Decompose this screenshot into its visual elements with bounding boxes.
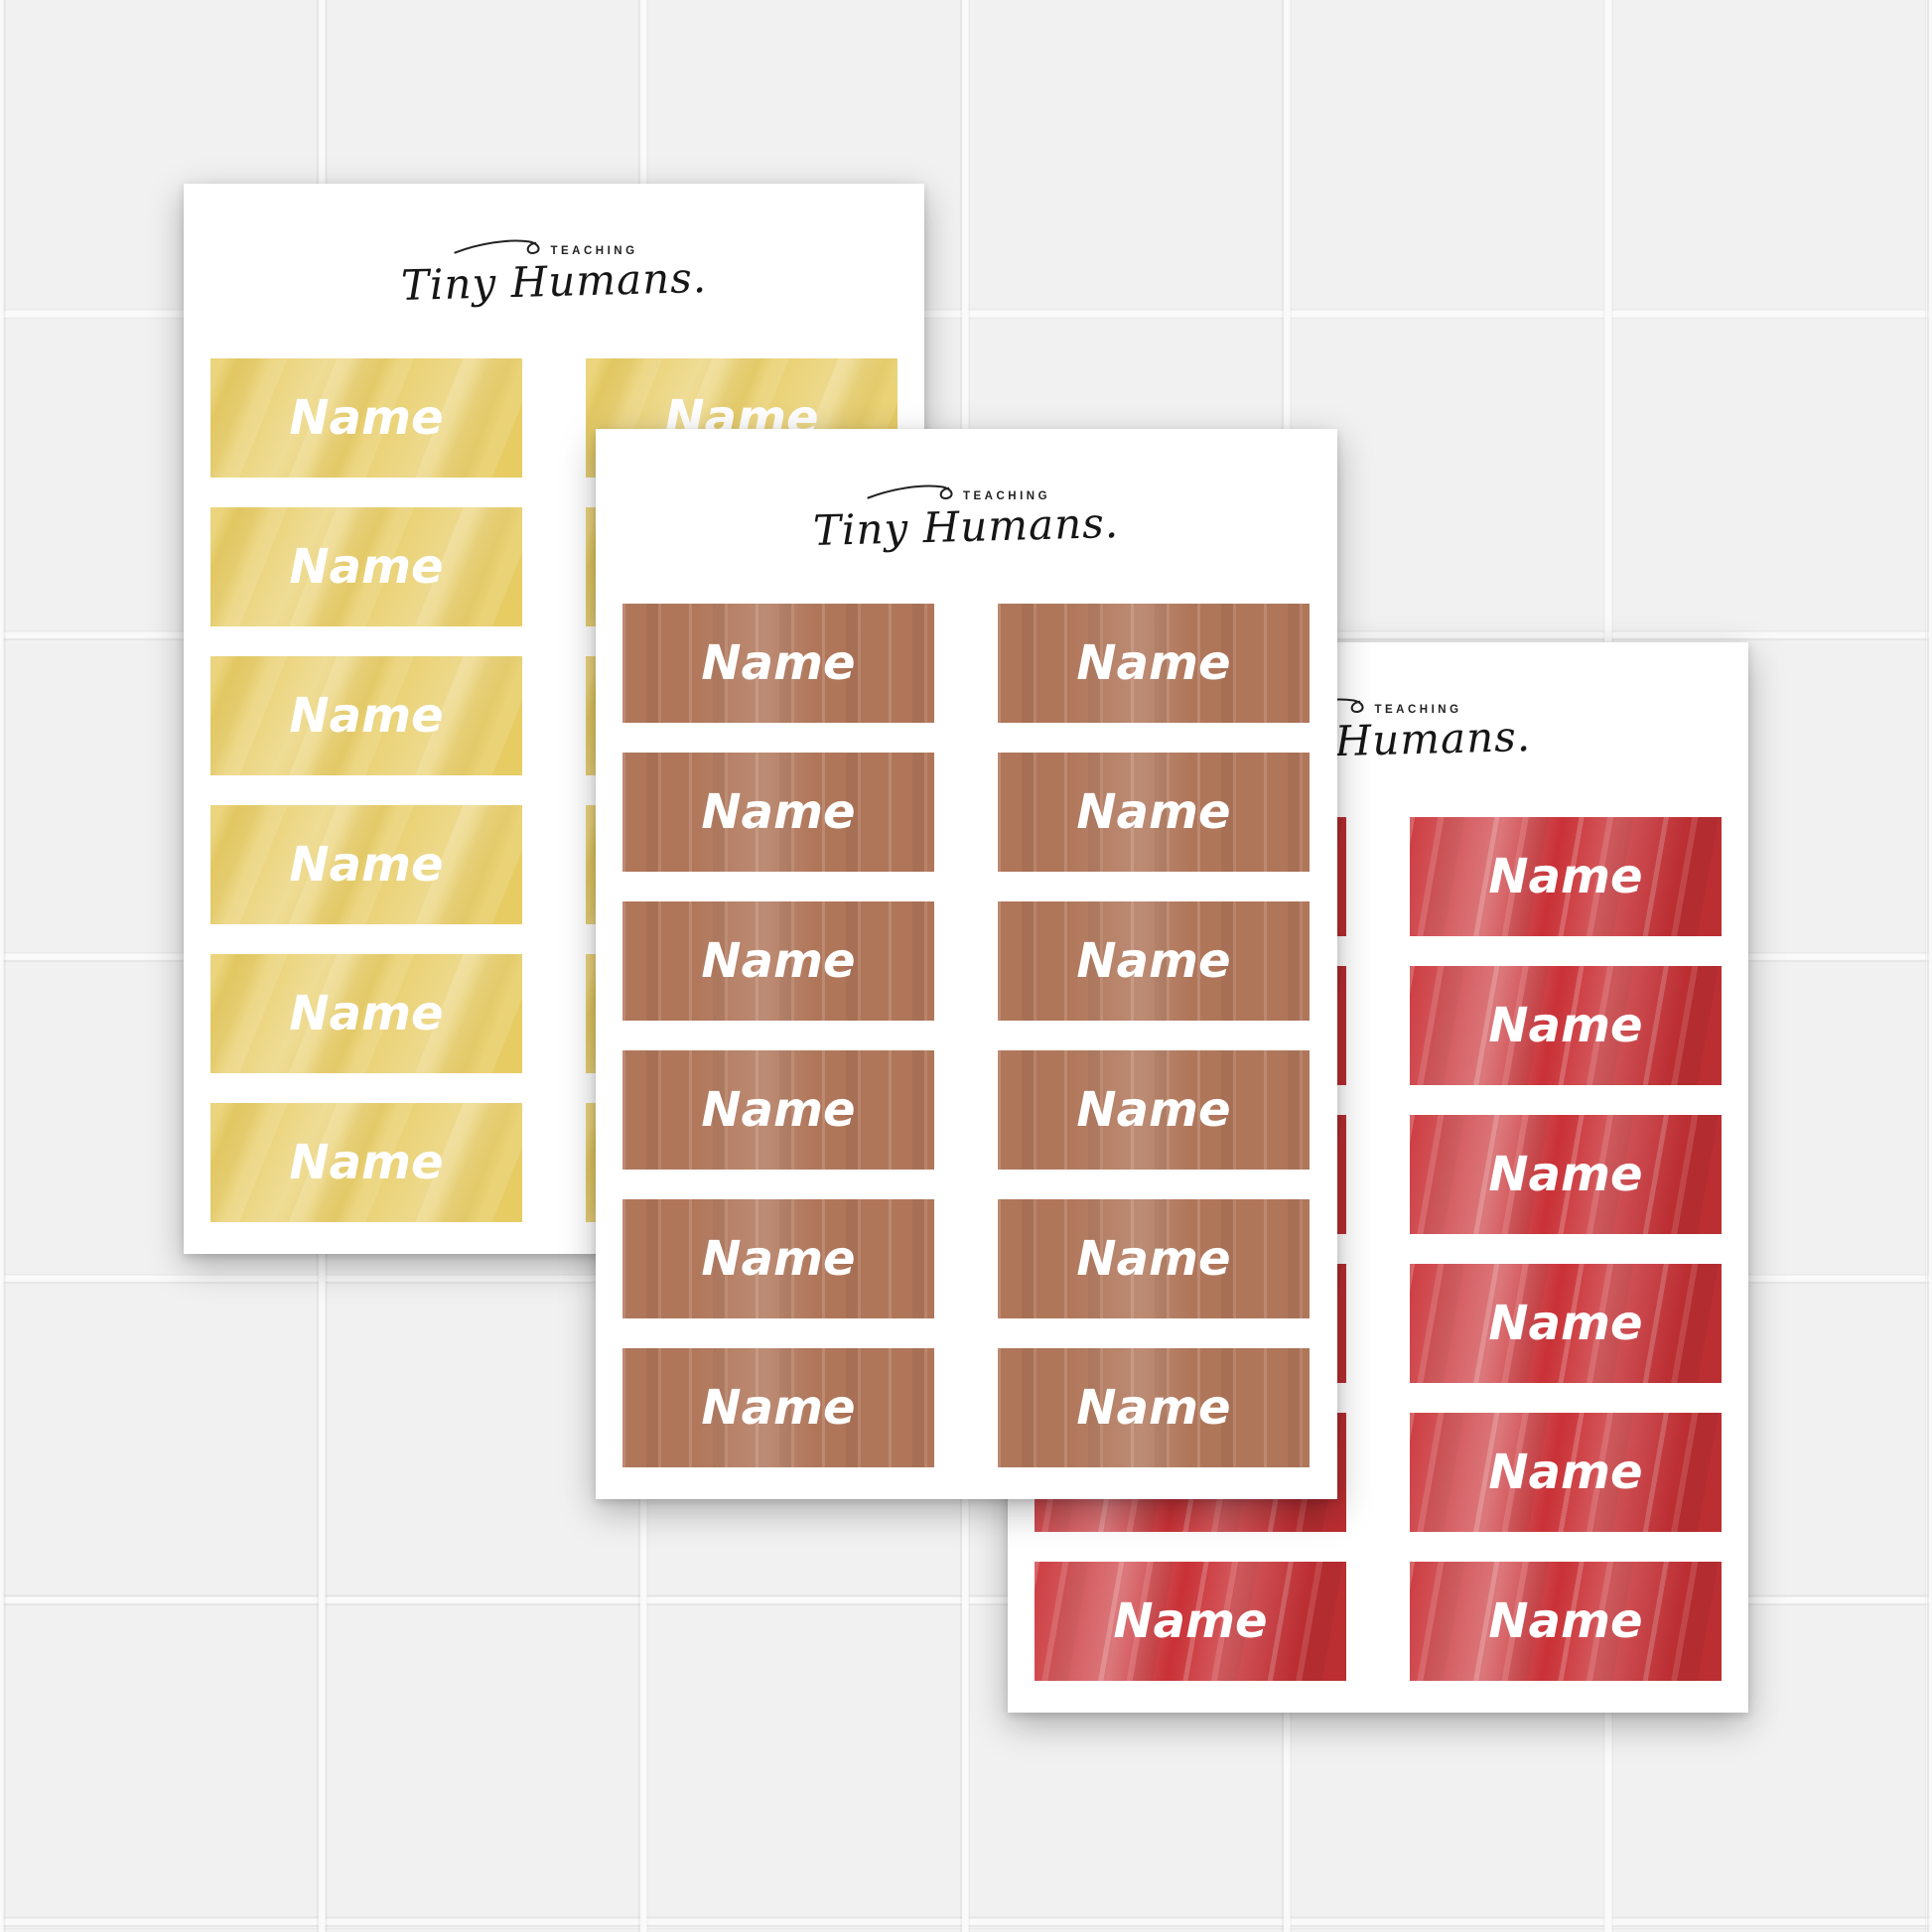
- name-label: Name: [1410, 1264, 1722, 1383]
- label-grid: NameNameNameNameNameNameNameNameNameName…: [622, 604, 1310, 1467]
- name-label: Name: [1410, 817, 1722, 936]
- sticker-sheet-brown: TEACHING Tiny Humans. NameNameNameNameNa…: [596, 429, 1337, 1499]
- name-label: Name: [622, 901, 934, 1021]
- name-label: Name: [1410, 1413, 1722, 1532]
- brand-name-teaching: TEACHING: [1374, 704, 1461, 716]
- name-label: Name: [998, 753, 1310, 872]
- name-label: Name: [998, 1348, 1310, 1467]
- name-label: Name: [1035, 1562, 1346, 1681]
- name-label: Name: [622, 1199, 934, 1318]
- brand-logo-top: TEACHING: [452, 237, 637, 257]
- name-label: Name: [1410, 1562, 1722, 1681]
- name-label: Name: [998, 1050, 1310, 1170]
- name-label: Name: [622, 604, 934, 723]
- brand-name-teaching: TEACHING: [550, 245, 637, 257]
- brand-logo: TEACHING Tiny Humans.: [596, 483, 1337, 551]
- name-label: Name: [210, 805, 522, 924]
- name-label: Name: [210, 358, 522, 478]
- name-label: Name: [1410, 966, 1722, 1085]
- name-label: Name: [210, 954, 522, 1073]
- logo-flourish-icon: [865, 479, 960, 504]
- name-label: Name: [998, 1199, 1310, 1318]
- brand-name-teaching: TEACHING: [963, 490, 1050, 502]
- name-label: Name: [622, 1348, 934, 1467]
- tile-background: TEACHING Tiny Humans. NameNameNameNameNa…: [0, 0, 1932, 1932]
- name-label: Name: [998, 604, 1310, 723]
- name-label: Name: [998, 901, 1310, 1021]
- brand-name-script: Tiny Humans.: [813, 498, 1120, 555]
- name-label: Name: [210, 656, 522, 775]
- name-label: Name: [622, 1050, 934, 1170]
- name-label: Name: [622, 753, 934, 872]
- brand-logo: TEACHING Tiny Humans.: [184, 237, 924, 306]
- name-label: Name: [210, 1103, 522, 1222]
- brand-logo-top: TEACHING: [865, 483, 1050, 502]
- logo-flourish-icon: [452, 233, 547, 259]
- name-label: Name: [1410, 1115, 1722, 1234]
- brand-name-script: Tiny Humans.: [400, 253, 707, 310]
- name-label: Name: [210, 507, 522, 626]
